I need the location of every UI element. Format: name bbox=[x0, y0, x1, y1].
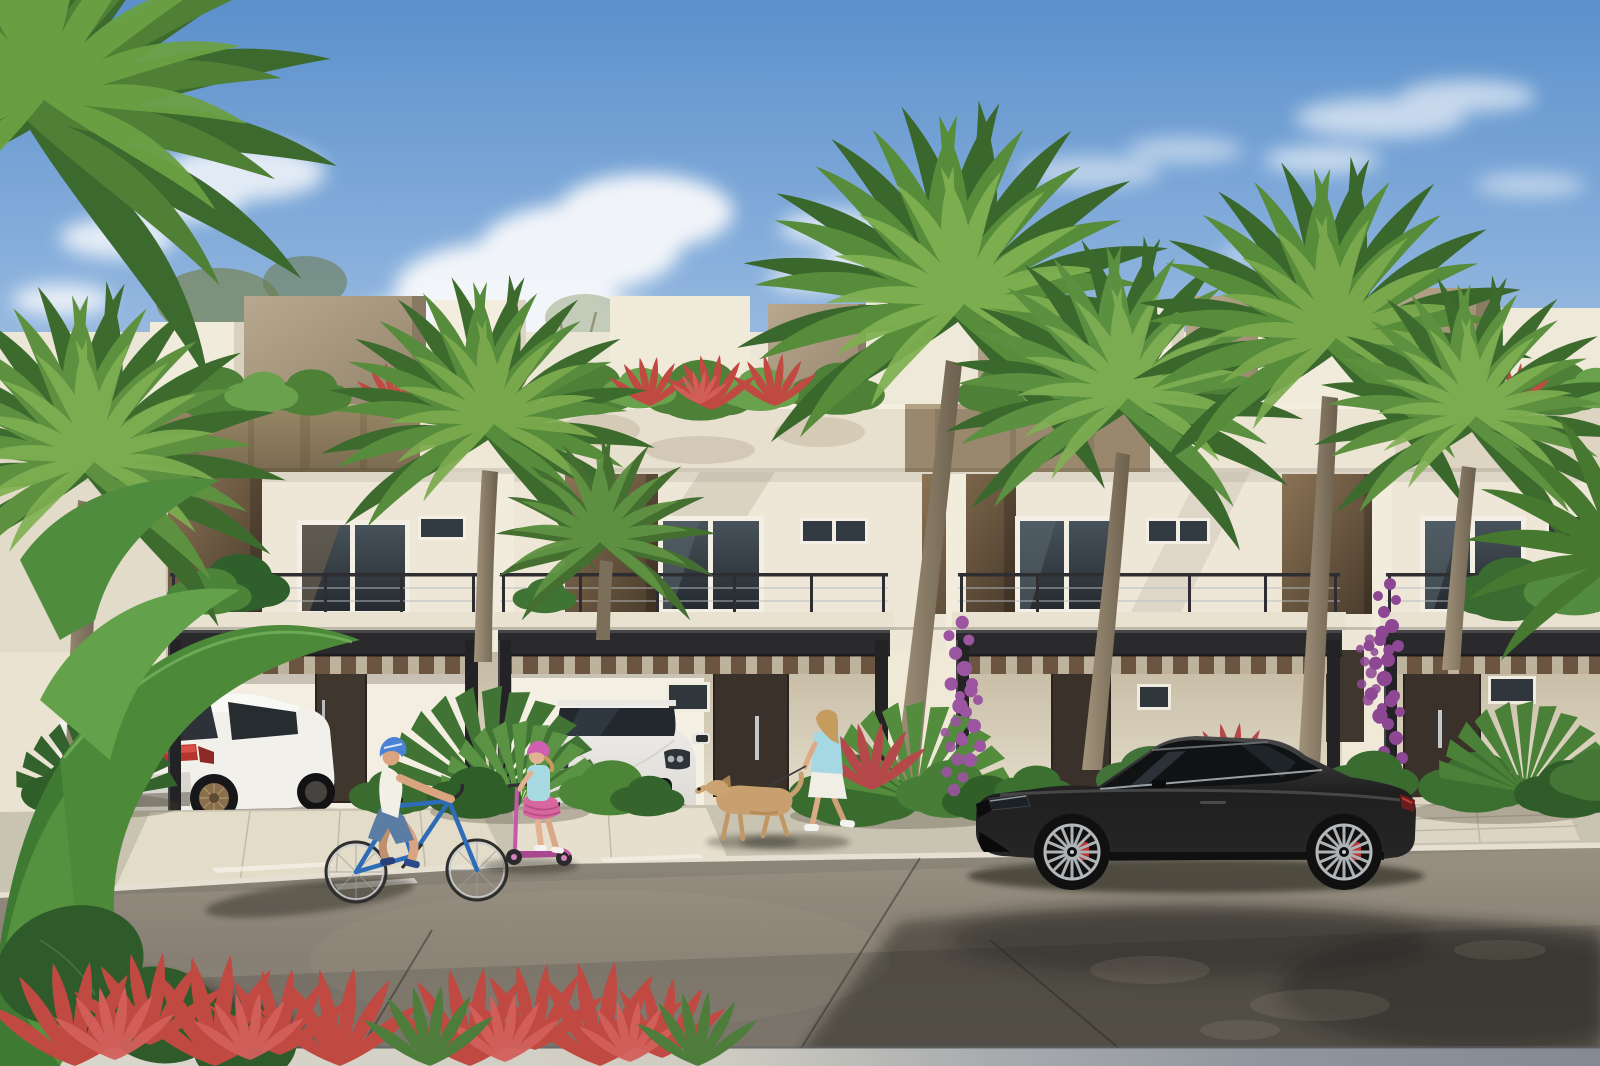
pergola-2 bbox=[498, 630, 890, 674]
coupe-front-wheel bbox=[1034, 814, 1110, 890]
pergola-4 bbox=[1384, 630, 1600, 674]
rendering-canvas: Sunny street-view architectural renderin… bbox=[0, 0, 1600, 1066]
architectural-rendering: Sunny street-view architectural renderin… bbox=[0, 0, 1600, 1066]
pergola-3 bbox=[956, 630, 1342, 674]
coupe-rear-wheel bbox=[1306, 814, 1382, 890]
